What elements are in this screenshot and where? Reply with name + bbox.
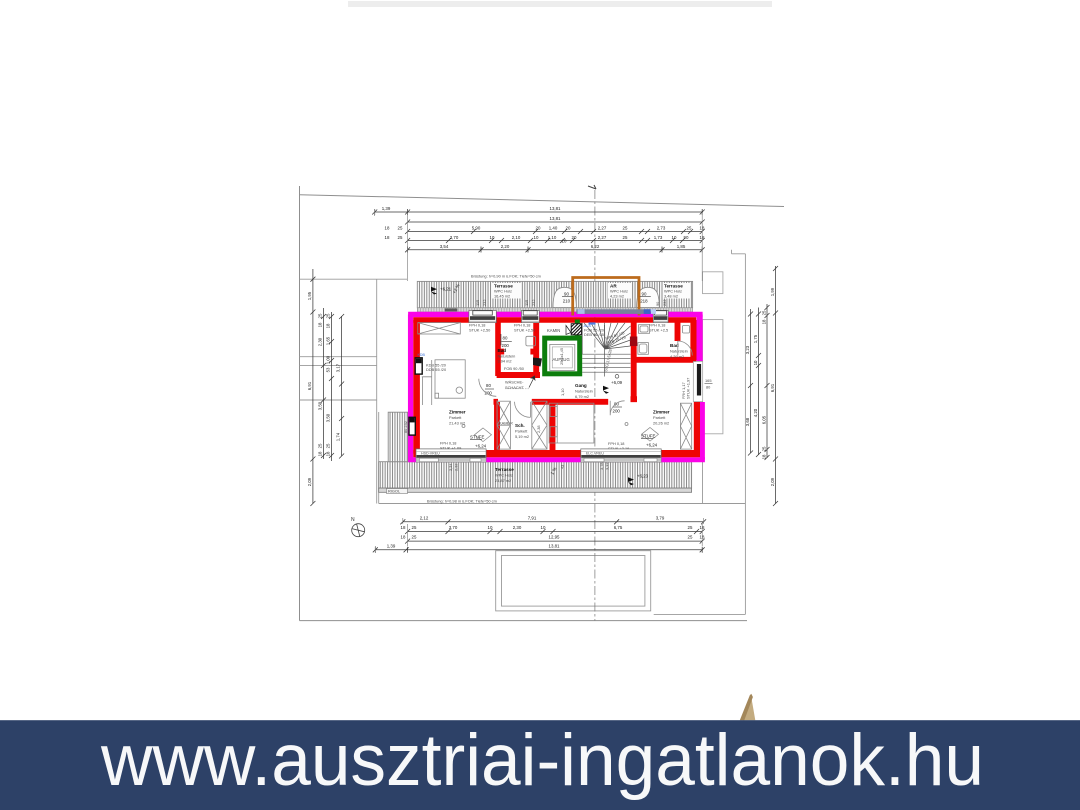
svg-text:10: 10 bbox=[541, 525, 546, 530]
svg-text:Zimmer: Zimmer bbox=[449, 410, 466, 415]
svg-text:13,81: 13,81 bbox=[550, 216, 562, 221]
svg-text:2,10: 2,10 bbox=[512, 235, 521, 240]
svg-text:www.ausztriai-ingatlanok.hu: www.ausztriai-ingatlanok.hu bbox=[100, 720, 984, 801]
svg-text:25,5x1,45: 25,5x1,45 bbox=[559, 348, 564, 365]
svg-text:3,50: 3,50 bbox=[326, 413, 331, 422]
svg-text:N: N bbox=[351, 517, 355, 523]
svg-text:6,91: 6,91 bbox=[770, 383, 775, 392]
svg-text:18: 18 bbox=[762, 454, 767, 459]
svg-text:18: 18 bbox=[326, 451, 331, 456]
svg-text:10: 10 bbox=[488, 525, 493, 530]
svg-text:Bad: Bad bbox=[498, 348, 507, 353]
svg-text:3,94 m2: 3,94 m2 bbox=[498, 359, 512, 364]
svg-text:90: 90 bbox=[564, 291, 569, 296]
svg-text:3,70: 3,70 bbox=[449, 525, 458, 530]
svg-text:1,00: 1,00 bbox=[326, 355, 331, 364]
svg-text:Naturstein: Naturstein bbox=[670, 349, 688, 354]
svg-text:+6,09: +6,09 bbox=[611, 380, 623, 385]
svg-text:STUK +2,50: STUK +2,50 bbox=[469, 328, 491, 333]
svg-text:RIGOL: RIGOL bbox=[388, 489, 401, 494]
svg-text:200: 200 bbox=[502, 343, 510, 348]
svg-text:115: 115 bbox=[524, 300, 529, 306]
svg-text:3,48 m2: 3,48 m2 bbox=[664, 294, 678, 299]
svg-text:+6,21: +6,21 bbox=[440, 287, 452, 292]
svg-text:Brüstung: h=0,98 m ü.FOK; Tief: Brüstung: h=0,98 m ü.FOK; Tiefe=50 cm bbox=[427, 499, 497, 504]
svg-text:25: 25 bbox=[318, 443, 323, 448]
svg-text:25: 25 bbox=[412, 525, 417, 530]
svg-text:3,32: 3,32 bbox=[605, 462, 610, 470]
svg-text:2,27: 2,27 bbox=[598, 226, 607, 231]
svg-text:2,32: 2,32 bbox=[454, 463, 459, 471]
svg-text:1,73: 1,73 bbox=[654, 235, 663, 240]
svg-text:2,38: 2,38 bbox=[536, 425, 541, 433]
svg-text:WÄSCHE-: WÄSCHE- bbox=[505, 380, 524, 385]
svg-text:2,30: 2,30 bbox=[513, 525, 522, 530]
svg-text:232: 232 bbox=[482, 300, 487, 307]
svg-text:4,29 m2: 4,29 m2 bbox=[670, 354, 684, 359]
svg-text:6,91: 6,91 bbox=[307, 381, 312, 390]
svg-text:6,79 m2: 6,79 m2 bbox=[575, 394, 589, 399]
svg-text:WPC Holz: WPC Holz bbox=[495, 473, 513, 478]
svg-text:53: 53 bbox=[326, 367, 331, 372]
svg-text:20: 20 bbox=[566, 226, 571, 231]
svg-text:SCHACHT: SCHACHT bbox=[505, 385, 524, 390]
svg-text:25: 25 bbox=[398, 226, 403, 231]
svg-text:232: 232 bbox=[662, 300, 667, 307]
svg-text:80: 80 bbox=[486, 383, 491, 388]
svg-text:3,17: 3,17 bbox=[336, 363, 341, 372]
svg-text:23,87 m2: 23,87 m2 bbox=[495, 478, 511, 483]
svg-text:25: 25 bbox=[623, 226, 628, 231]
svg-text:20,26 m2: 20,26 m2 bbox=[653, 421, 669, 426]
svg-text:2,09: 2,09 bbox=[307, 477, 312, 486]
svg-text:3,54: 3,54 bbox=[440, 244, 449, 249]
svg-text:STUFE: STUFE bbox=[641, 434, 655, 439]
svg-text:80 232: 80 232 bbox=[403, 421, 408, 433]
svg-text:STUFE: STUFE bbox=[470, 435, 484, 440]
svg-text:STUK +1,97: STUK +1,97 bbox=[686, 378, 691, 399]
svg-text:10: 10 bbox=[753, 360, 758, 365]
svg-text:FOB 90 /50: FOB 90 /50 bbox=[504, 366, 525, 371]
svg-text:Brüstung: h=0,90 m ü.FOK; Tief: Brüstung: h=0,90 m ü.FOK; Tiefe=50 cm bbox=[471, 274, 541, 279]
svg-text:16,45 m2: 16,45 m2 bbox=[494, 294, 510, 299]
svg-text:Parkett: Parkett bbox=[449, 415, 462, 420]
svg-text:5,19 m2: 5,19 m2 bbox=[515, 434, 529, 439]
svg-text:DEB 16 /15: DEB 16 /15 bbox=[584, 332, 604, 337]
svg-text:43: 43 bbox=[560, 465, 565, 469]
svg-text:165: 165 bbox=[705, 378, 712, 383]
svg-text:1,10: 1,10 bbox=[560, 388, 565, 396]
svg-text:Zimmer: Zimmer bbox=[653, 410, 670, 415]
svg-text:25: 25 bbox=[762, 310, 767, 315]
svg-text:25: 25 bbox=[398, 235, 403, 240]
svg-text:10: 10 bbox=[562, 239, 567, 244]
svg-text:DDB 55 /20: DDB 55 /20 bbox=[426, 367, 447, 372]
svg-text:10: 10 bbox=[672, 235, 677, 240]
svg-text:3,78: 3,78 bbox=[599, 462, 604, 470]
svg-text:18: 18 bbox=[385, 235, 390, 240]
svg-text:+6,24: +6,24 bbox=[646, 443, 658, 448]
svg-text:1,95: 1,95 bbox=[307, 291, 312, 300]
svg-text:13,81: 13,81 bbox=[549, 543, 561, 548]
svg-text:20: 20 bbox=[536, 226, 541, 231]
svg-text:3,34: 3,34 bbox=[448, 463, 453, 471]
svg-text:4,20: 4,20 bbox=[753, 408, 758, 417]
svg-text:10: 10 bbox=[490, 235, 495, 240]
svg-text:KAMIN: KAMIN bbox=[547, 328, 560, 333]
svg-text:25: 25 bbox=[762, 446, 767, 451]
svg-text:10: 10 bbox=[534, 235, 539, 240]
svg-text:18: 18 bbox=[326, 323, 331, 328]
svg-text:13,81: 13,81 bbox=[550, 206, 562, 211]
svg-text:1,65: 1,65 bbox=[326, 336, 331, 345]
svg-text:1,40: 1,40 bbox=[549, 226, 558, 231]
svg-text:218: 218 bbox=[640, 298, 648, 303]
svg-text:2,73: 2,73 bbox=[657, 226, 666, 231]
svg-text:2,20: 2,20 bbox=[501, 244, 510, 249]
svg-text:25: 25 bbox=[318, 313, 323, 318]
svg-text:KAMER: KAMER bbox=[499, 421, 513, 426]
svg-text:18: 18 bbox=[762, 319, 767, 324]
svg-text:6,05: 6,05 bbox=[762, 415, 767, 424]
svg-text:2,30: 2,30 bbox=[318, 337, 323, 346]
svg-text:4,23 m2: 4,23 m2 bbox=[610, 294, 624, 299]
svg-text:1,99: 1,99 bbox=[770, 287, 775, 296]
svg-text:25: 25 bbox=[623, 235, 628, 240]
svg-text:3,50: 3,50 bbox=[318, 401, 323, 410]
svg-text:3,70: 3,70 bbox=[450, 235, 459, 240]
svg-text:3,68: 3,68 bbox=[745, 417, 750, 426]
svg-text:90: 90 bbox=[642, 291, 647, 296]
svg-text:210: 210 bbox=[563, 298, 571, 303]
svg-text:3,23: 3,23 bbox=[745, 345, 750, 354]
svg-text:25: 25 bbox=[326, 313, 331, 318]
svg-text:18: 18 bbox=[385, 226, 390, 231]
svg-text:25: 25 bbox=[412, 535, 417, 540]
svg-text:1,74: 1,74 bbox=[336, 432, 341, 441]
svg-text:80: 80 bbox=[503, 336, 508, 341]
svg-text:25: 25 bbox=[688, 535, 693, 540]
svg-text:18: 18 bbox=[318, 322, 323, 327]
svg-text:6,22: 6,22 bbox=[591, 244, 600, 249]
svg-text:25: 25 bbox=[326, 443, 331, 448]
svg-text:1,10: 1,10 bbox=[548, 235, 557, 240]
svg-text:12,95: 12,95 bbox=[549, 535, 561, 540]
svg-text:115: 115 bbox=[475, 300, 480, 306]
svg-text:Naturstein: Naturstein bbox=[575, 389, 593, 394]
svg-text:1,39: 1,39 bbox=[382, 206, 391, 211]
svg-text:25: 25 bbox=[688, 525, 693, 530]
svg-text:2,27: 2,27 bbox=[598, 235, 607, 240]
svg-text:6,75: 6,75 bbox=[614, 525, 623, 530]
svg-text:18: 18 bbox=[401, 535, 406, 540]
svg-text:1,75: 1,75 bbox=[753, 334, 758, 343]
svg-text:+6,23: +6,23 bbox=[637, 474, 649, 479]
svg-text:Parkett: Parkett bbox=[653, 415, 666, 420]
svg-text:7,91: 7,91 bbox=[528, 515, 537, 520]
svg-text:STUK +2,50: STUK +2,50 bbox=[514, 328, 536, 333]
svg-text:25: 25 bbox=[687, 226, 692, 231]
svg-text:20: 20 bbox=[572, 235, 577, 240]
svg-text:232: 232 bbox=[531, 300, 536, 307]
svg-text:Terrasse: Terrasse bbox=[495, 467, 514, 472]
svg-text:90: 90 bbox=[684, 235, 689, 240]
svg-text:1,39: 1,39 bbox=[387, 543, 396, 548]
svg-text:Parkett: Parkett bbox=[515, 429, 528, 434]
svg-text:KDB: KDB bbox=[418, 353, 426, 357]
svg-text:1,85: 1,85 bbox=[677, 244, 686, 249]
svg-text:+6,24: +6,24 bbox=[475, 444, 487, 449]
svg-text:Gang: Gang bbox=[575, 383, 587, 388]
svg-text:5,90: 5,90 bbox=[472, 226, 481, 231]
svg-text:200: 200 bbox=[613, 409, 621, 414]
svg-text:2,12: 2,12 bbox=[420, 515, 429, 520]
svg-text:3,79: 3,79 bbox=[656, 515, 665, 520]
svg-text:Sch.: Sch. bbox=[515, 423, 525, 428]
svg-text:STUK +2,5: STUK +2,5 bbox=[649, 328, 668, 333]
svg-text:18: 18 bbox=[401, 525, 406, 530]
svg-text:2,09: 2,09 bbox=[770, 477, 775, 486]
svg-text:18: 18 bbox=[318, 451, 323, 456]
